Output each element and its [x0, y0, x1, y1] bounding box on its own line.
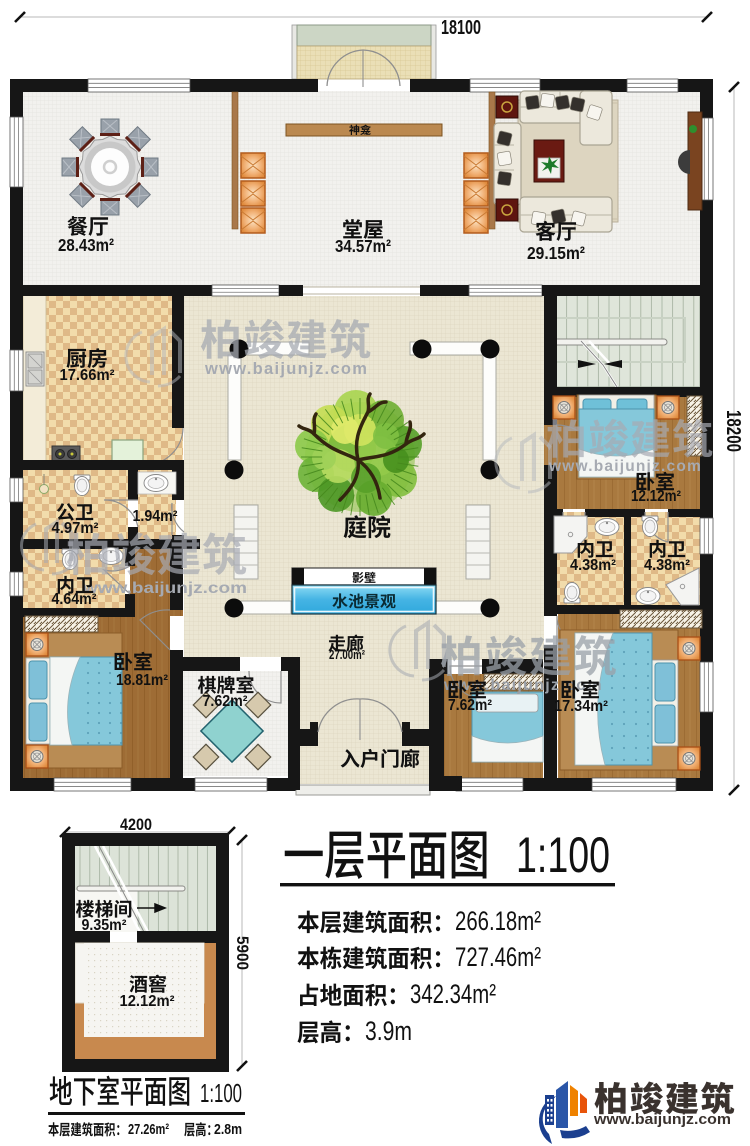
- svg-text:34.57m²: 34.57m²: [335, 236, 391, 256]
- svg-text:1:100: 1:100: [516, 827, 610, 883]
- svg-text:1:100: 1:100: [200, 1078, 242, 1108]
- svg-text:9.35m²: 9.35m²: [82, 917, 127, 934]
- svg-text:4200: 4200: [120, 815, 152, 834]
- svg-text:18.81m²: 18.81m²: [116, 672, 168, 689]
- svg-text:1.94m²: 1.94m²: [133, 508, 178, 525]
- svg-text:3.9m: 3.9m: [365, 1016, 412, 1046]
- svg-text:7.62m²: 7.62m²: [448, 697, 492, 714]
- svg-text:4.97m²: 4.97m²: [52, 520, 99, 537]
- svg-text:17.66m²: 17.66m²: [60, 367, 115, 384]
- svg-text:17.34m²: 17.34m²: [554, 698, 608, 715]
- svg-text:28.43m²: 28.43m²: [58, 235, 114, 255]
- svg-text:18200: 18200: [722, 410, 744, 452]
- svg-text:www.baijunjz.com: www.baijunjz.com: [548, 458, 702, 475]
- svg-text:www.baijunjz.com: www.baijunjz.com: [204, 360, 368, 378]
- svg-text:27.26m²: 27.26m²: [128, 1121, 169, 1138]
- svg-text:12.12m²: 12.12m²: [631, 488, 681, 505]
- svg-text:www.baijunjz.com: www.baijunjz.com: [443, 677, 603, 694]
- svg-text:27.00m²: 27.00m²: [329, 648, 365, 662]
- svg-text:4.38m²: 4.38m²: [644, 557, 690, 574]
- svg-text:727.46m²: 727.46m²: [455, 942, 541, 972]
- svg-text:29.15m²: 29.15m²: [527, 243, 585, 263]
- svg-text:4.38m²: 4.38m²: [570, 557, 616, 574]
- svg-text:4.64m²: 4.64m²: [52, 591, 97, 608]
- svg-text:5900: 5900: [233, 936, 252, 970]
- svg-text:342.34m²: 342.34m²: [410, 979, 496, 1009]
- svg-text:www.baijunjz.com: www.baijunjz.com: [593, 1111, 731, 1128]
- svg-text:18100: 18100: [441, 17, 481, 39]
- svg-text:www.baijunjz.com: www.baijunjz.com: [82, 580, 247, 597]
- svg-text:2.8m: 2.8m: [214, 1121, 242, 1138]
- svg-text:12.12m²: 12.12m²: [120, 993, 175, 1010]
- svg-text:7.62m²: 7.62m²: [203, 693, 248, 710]
- svg-text:266.18m²: 266.18m²: [455, 906, 541, 936]
